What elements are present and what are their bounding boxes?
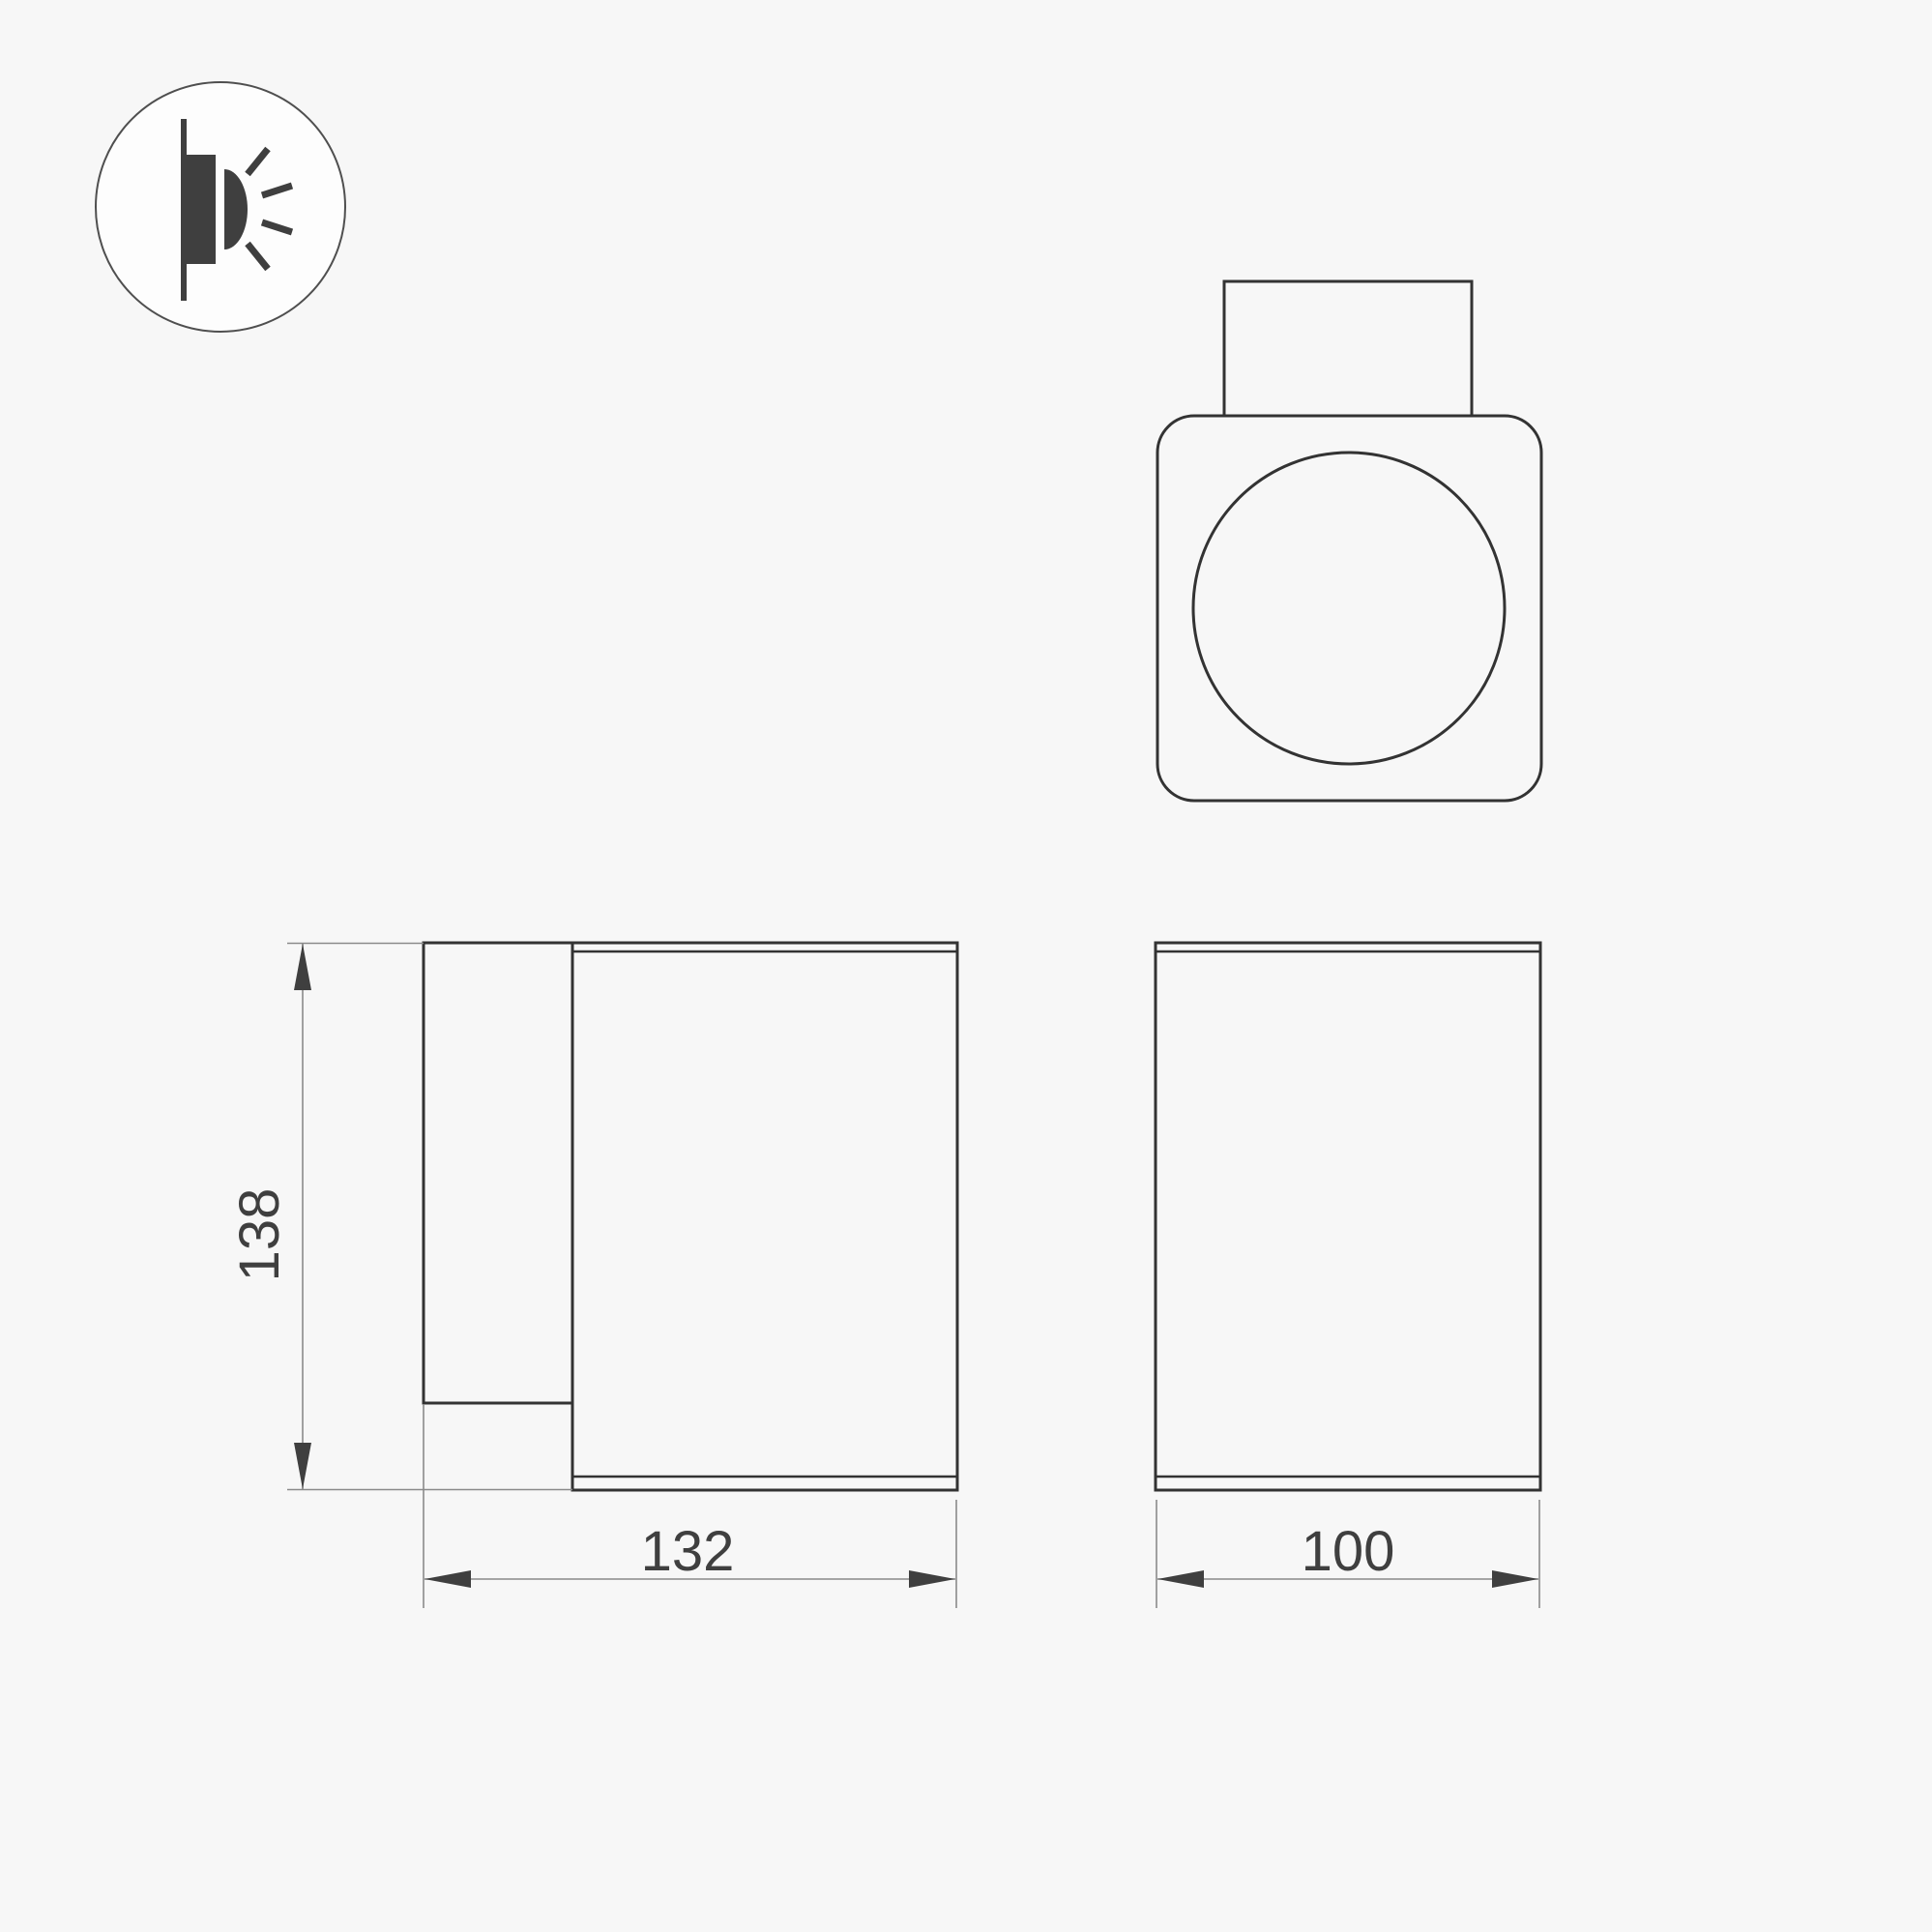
icon-circle — [96, 82, 345, 332]
top-view-housing — [1157, 416, 1541, 801]
depth-dimension-label: 132 — [641, 1520, 735, 1583]
height-dimension-label: 138 — [228, 1188, 291, 1282]
wall-light-icon — [96, 82, 345, 332]
arrow-right-icon — [909, 1570, 955, 1588]
arrow-up-icon — [294, 944, 311, 990]
side-view-mounting-bracket — [424, 943, 572, 1403]
technical-drawing-canvas: 138 132 100 — [0, 0, 1932, 1932]
icon-fixture-body — [186, 155, 216, 264]
side-view-housing — [572, 943, 957, 1490]
depth-dimension: 132 — [424, 1404, 956, 1608]
arrow-left-icon — [1157, 1570, 1204, 1588]
top-view-mounting-bracket — [1224, 281, 1472, 416]
height-dimension: 138 — [228, 944, 572, 1490]
dimensional-drawing: 138 132 100 — [0, 0, 1932, 1932]
arrow-left-icon — [424, 1570, 471, 1588]
side-view — [424, 943, 957, 1490]
arrow-right-icon — [1492, 1570, 1538, 1588]
front-view — [1156, 943, 1540, 1490]
top-view-lens-circle — [1193, 453, 1505, 764]
width-dimension: 100 — [1156, 1500, 1539, 1608]
front-view-housing — [1156, 943, 1540, 1490]
width-dimension-label: 100 — [1302, 1520, 1395, 1583]
top-view — [1157, 281, 1541, 801]
arrow-down-icon — [294, 1443, 311, 1489]
